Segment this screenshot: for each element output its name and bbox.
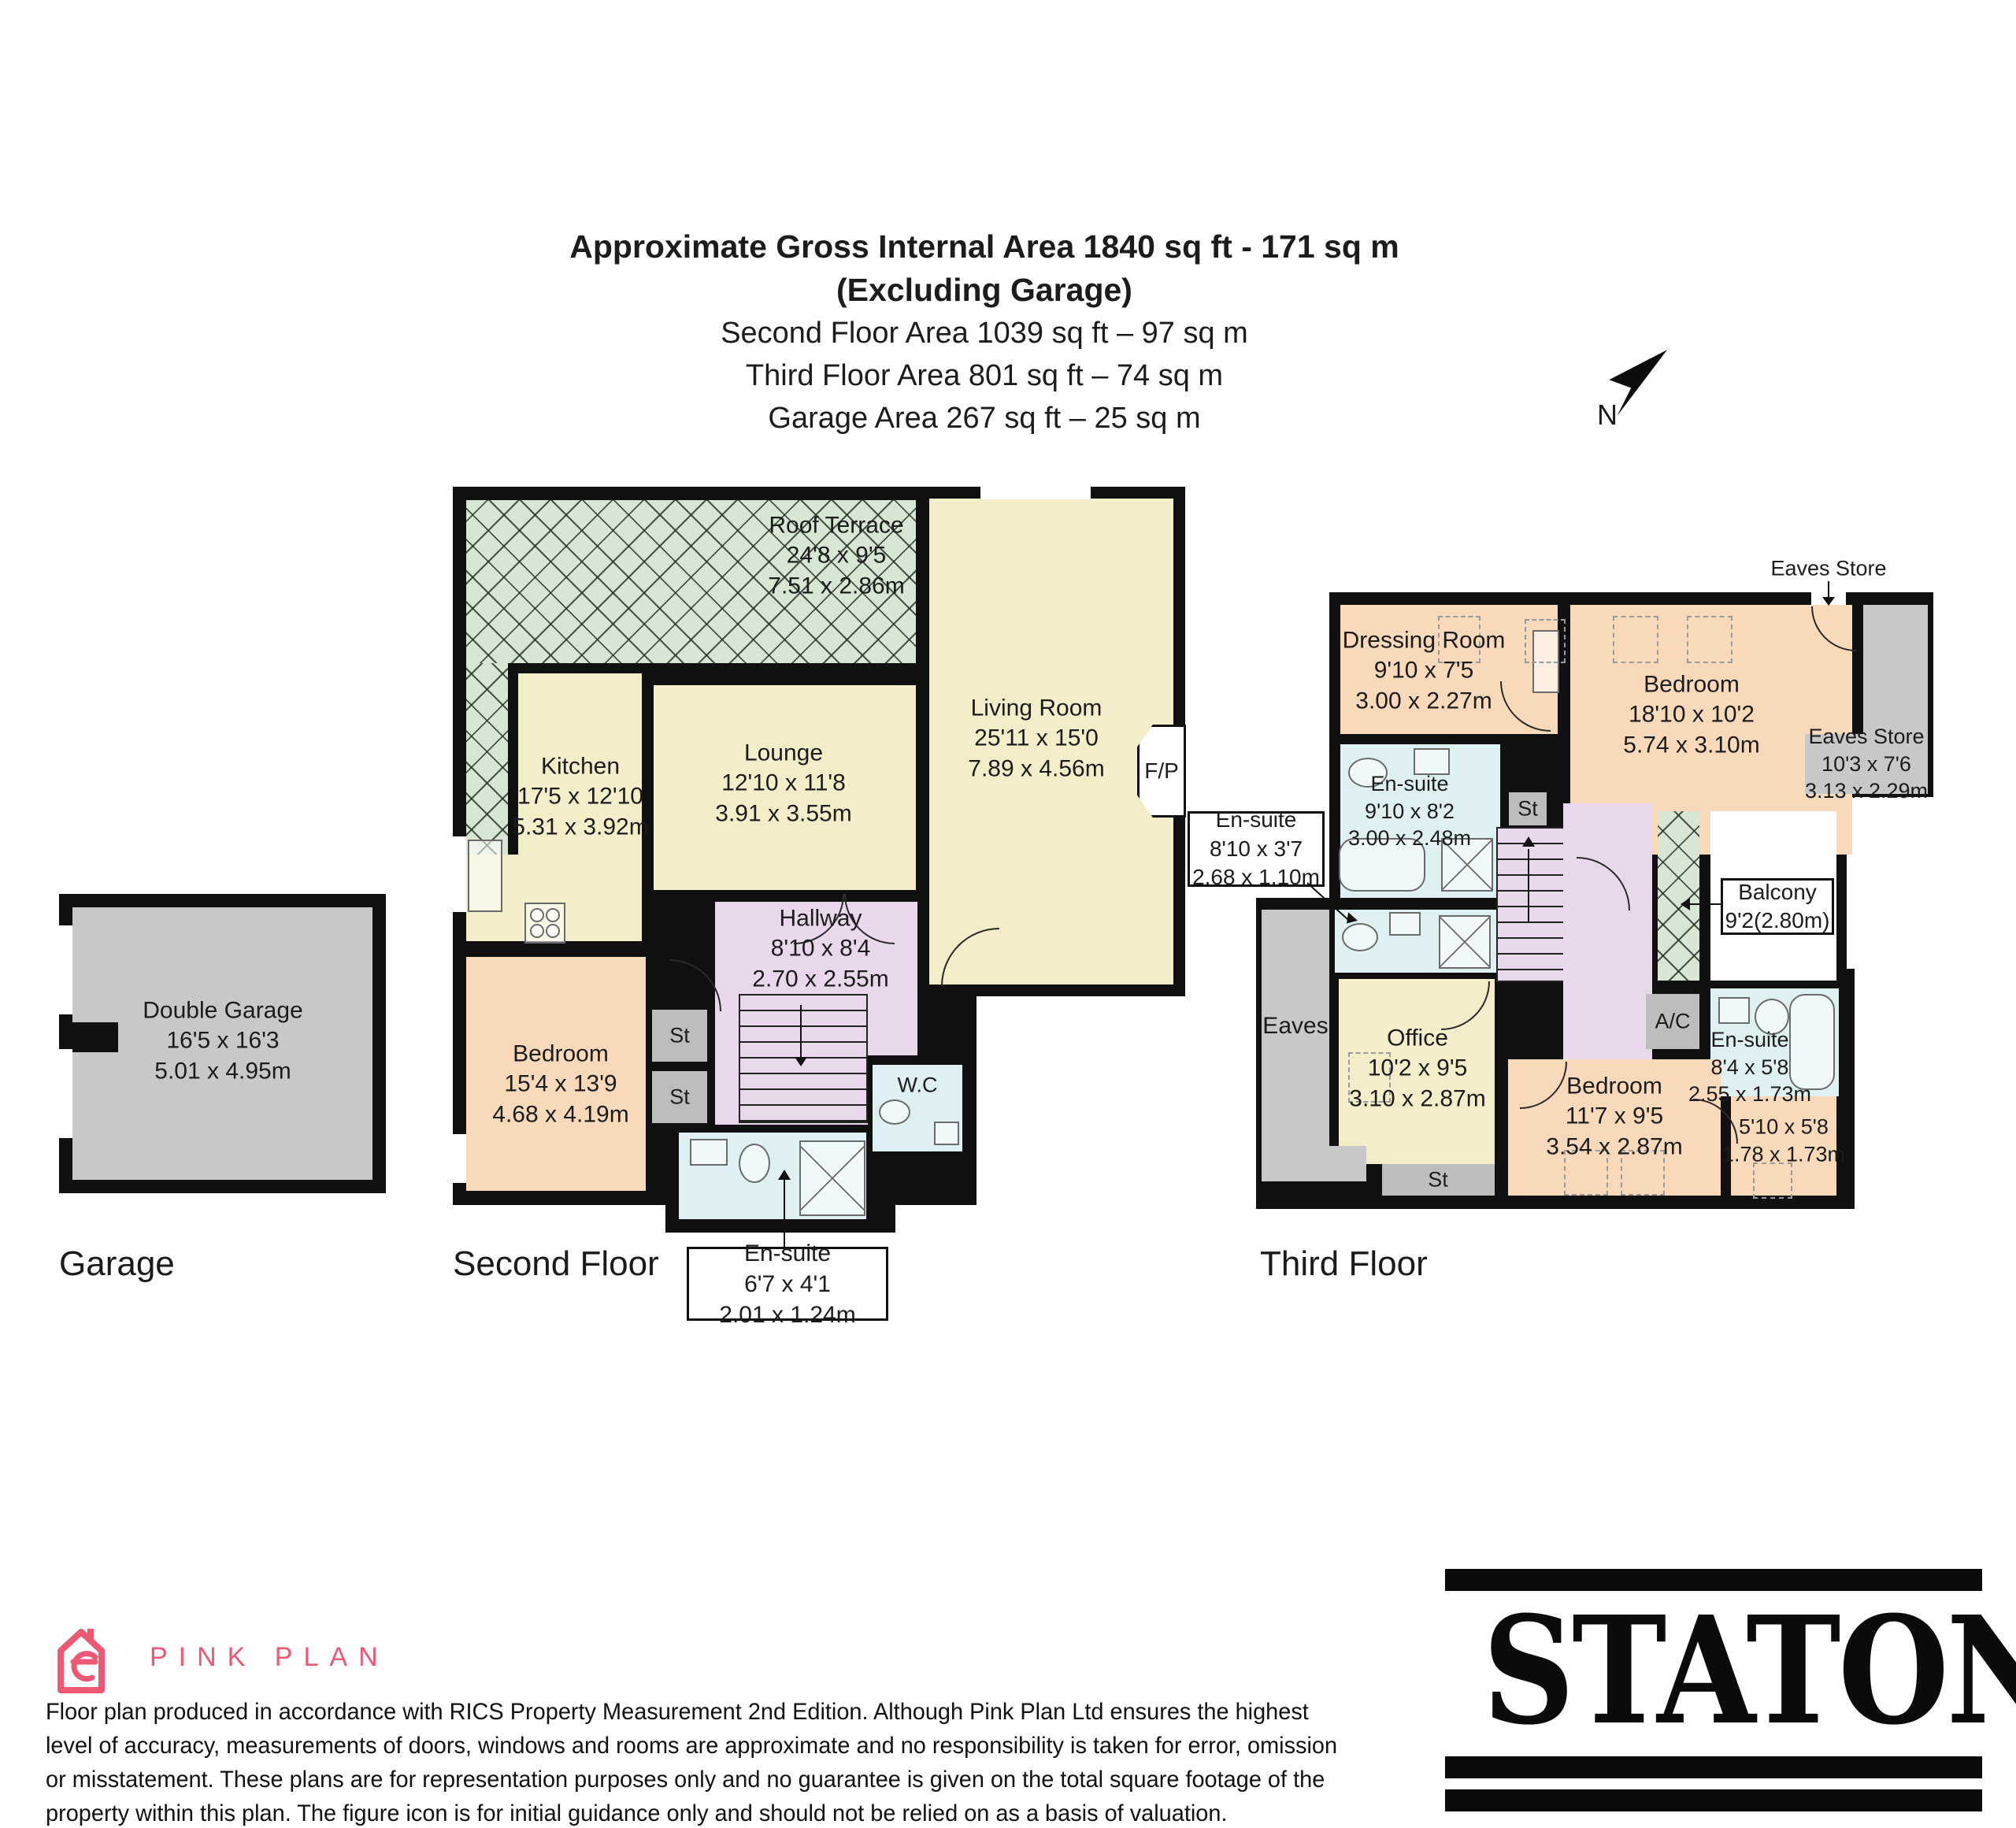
store1-label: St xyxy=(669,1022,690,1050)
ensuite2f-sink-icon xyxy=(690,1139,728,1166)
closet-label: 5'10 x 5'81.78 x 1.73m xyxy=(1722,1113,1845,1167)
third-floor-caption: Third Floor xyxy=(1260,1244,1428,1284)
compass: N xyxy=(1575,339,1685,441)
closet-wardrobe-icon xyxy=(1753,1162,1792,1199)
area-third-floor: Third Floor Area 801 sq ft – 74 sq m xyxy=(425,355,1543,398)
kitchen-window xyxy=(453,836,466,912)
eaves-strip xyxy=(1262,910,1329,1181)
office-label: Office10'2 x 9'53.10 x 2.87m xyxy=(1349,1023,1485,1114)
ensuite2-sink-icon xyxy=(1718,997,1750,1024)
roof-terrace-side xyxy=(466,663,508,855)
ensuite2f-pointer-line xyxy=(784,1179,785,1247)
eaves-strip-foot xyxy=(1329,1146,1366,1181)
wc-toilet-icon xyxy=(879,1099,910,1125)
ensuite2f-pointer-head xyxy=(778,1170,791,1180)
roof-terrace-label: Roof Terrace24'8 x 9'57.51 x 2.86m xyxy=(768,510,904,601)
ensuite3f1-label: En-suite9'10 x 8'23.00 x 2.48m xyxy=(1348,770,1471,852)
statons-logo: STATONS xyxy=(1445,1569,1982,1811)
garage-wall-pier xyxy=(72,1022,118,1052)
fireplace: F/P xyxy=(1137,725,1186,818)
bedroom2f-label: Bedroom15'4 x 13'94.68 x 4.19m xyxy=(492,1039,628,1129)
ensuite2f-toilet-icon xyxy=(739,1144,770,1183)
store2-label: St xyxy=(669,1084,690,1111)
kitchen-sink-icon xyxy=(468,840,502,912)
wc-label: W.C xyxy=(898,1072,938,1099)
store3f-bottom-label: St xyxy=(1428,1166,1448,1194)
ensuite-narrow-shower-icon xyxy=(1439,915,1491,969)
stairs3f-arrow-head xyxy=(1522,836,1535,847)
lounge-label: Lounge12'10 x 11'83.91 x 3.55m xyxy=(715,738,851,829)
bedroom-window xyxy=(453,1134,466,1183)
statons-wordmark: STATONS xyxy=(1483,1597,1945,1745)
title-line-1: Approximate Gross Internal Area 1840 sq … xyxy=(425,225,1543,269)
living-room-window xyxy=(980,487,1091,499)
stairs2f-arrow-head xyxy=(795,1057,807,1066)
bedroom1-wardrobe-icon-1 xyxy=(1525,619,1566,663)
eaves-store-pointer-label: Eaves Store xyxy=(1770,555,1886,583)
eaves-store-label: Eaves Store10'3 x 7'63.13 x 2.29m xyxy=(1805,723,1928,805)
hallway-label: Hallway8'10 x 8'42.70 x 2.55m xyxy=(752,903,888,994)
eaves-label: Eaves xyxy=(1262,1011,1328,1041)
landing-third-floor xyxy=(1563,803,1652,1059)
area-second-floor: Second Floor Area 1039 sq ft – 97 sq m xyxy=(425,313,1543,355)
north-arrow-icon xyxy=(1575,339,1685,441)
pink-plan-wordmark: PINK PLAN xyxy=(150,1642,389,1673)
stove-icon xyxy=(524,903,565,944)
ensuite3f-callout: En-suite 8'10 x 3'7 2.68 x 1.10m xyxy=(1188,811,1325,887)
dressing-room-label: Dressing Room9'10 x 7'53.00 x 2.27m xyxy=(1343,625,1506,716)
bedroom3f1-label: Bedroom18'10 x 10'25.74 x 3.10m xyxy=(1623,669,1759,760)
balcony-pointer-line xyxy=(1690,903,1721,905)
floorplan-page: Approximate Gross Internal Area 1840 sq … xyxy=(0,0,2016,1828)
store3f-mid-label: St xyxy=(1518,795,1538,823)
stairs-third-floor xyxy=(1496,827,1565,982)
statons-bar-mid xyxy=(1445,1756,1982,1778)
ensuite-narrow-sink-icon xyxy=(1389,912,1421,936)
balcony-pointer-head xyxy=(1681,898,1690,910)
fireplace-label: F/P xyxy=(1144,758,1179,784)
header: Approximate Gross Internal Area 1840 sq … xyxy=(425,225,1543,440)
disclaimer: Floor plan produced in accordance with R… xyxy=(46,1695,1337,1828)
garage-window-top xyxy=(59,925,72,1014)
ensuite2f-shower-icon xyxy=(799,1140,865,1216)
title-line-2: (Excluding Garage) xyxy=(425,269,1543,312)
bedroom1-wardrobe-icon-3 xyxy=(1687,616,1732,663)
wc-sink-icon xyxy=(934,1122,959,1145)
balcony xyxy=(1658,811,1699,981)
third-floor-void-right xyxy=(1847,797,1933,969)
pink-plan-logo-icon xyxy=(43,1613,130,1696)
area-garage: Garage Area 267 sq ft – 25 sq m xyxy=(425,398,1543,440)
bedroom3f2-label: Bedroom11'7 x 9'53.54 x 2.87m xyxy=(1546,1071,1682,1162)
garage-window-bottom xyxy=(59,1049,72,1138)
stairs3f-arrow-line xyxy=(1528,849,1529,921)
balcony-callout: Balcony 9'2(2.80m) xyxy=(1721,878,1834,935)
ensuite2f-callout: En-suite 6'7 x 4'1 2.01 x 1.24m xyxy=(687,1247,888,1321)
ensuite3f2-label: En-suite8'4 x 5'82.55 x 1.73m xyxy=(1688,1026,1811,1108)
living-room-label: Living Room25'11 x 15'07.89 x 4.56m xyxy=(968,693,1104,784)
ensuite-narrow-toilet-icon xyxy=(1342,923,1378,951)
compass-north-label: N xyxy=(1597,399,1618,432)
garage-room-label: Double Garage 16'5 x 16'3 5.01 x 4.95m xyxy=(143,996,302,1086)
bedroom1-wardrobe-icon-2 xyxy=(1613,616,1658,663)
stairs2f-arrow-line xyxy=(800,1005,802,1057)
ac-label: A/C xyxy=(1655,1008,1690,1036)
eaves-store-pointer-head xyxy=(1822,597,1835,606)
kitchen-label: Kitchen17'5 x 12'105.31 x 3.92m xyxy=(512,751,648,842)
second-floor-caption: Second Floor xyxy=(453,1244,659,1284)
garage-caption: Garage xyxy=(59,1244,175,1284)
statons-bar-bottom xyxy=(1445,1789,1982,1811)
